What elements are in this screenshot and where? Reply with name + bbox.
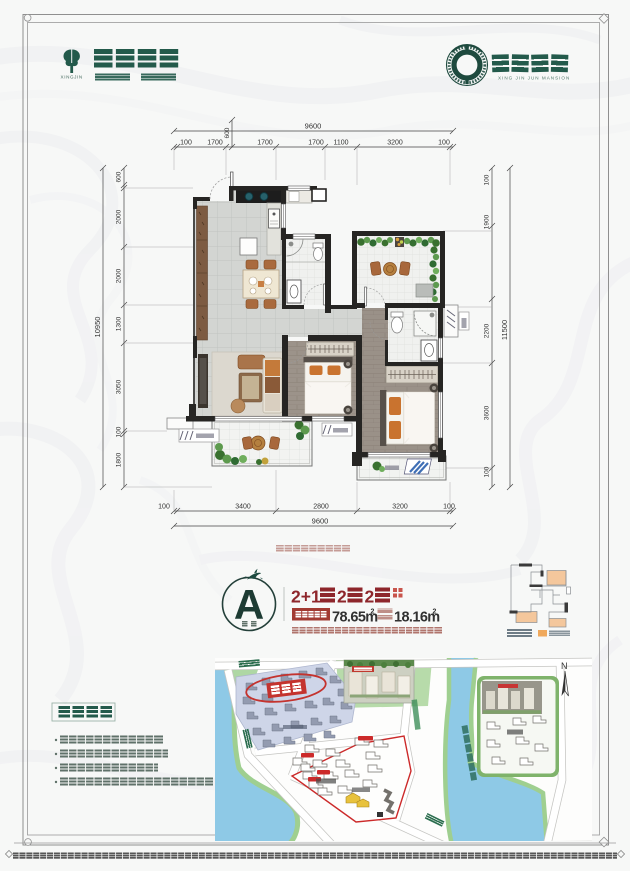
svg-text:100: 100 xyxy=(158,504,170,511)
svg-text:600: 600 xyxy=(116,171,123,182)
svg-text:3400: 3400 xyxy=(235,504,251,511)
svg-text:3200: 3200 xyxy=(392,504,408,511)
svg-text:1100: 1100 xyxy=(333,140,348,147)
svg-text:1700: 1700 xyxy=(257,140,273,147)
svg-text:100: 100 xyxy=(484,174,491,185)
svg-text:1700: 1700 xyxy=(308,140,324,147)
svg-text:XINGJIN: XINGJIN xyxy=(61,75,83,80)
svg-text:10950: 10950 xyxy=(93,317,102,338)
svg-text:3200: 3200 xyxy=(387,140,403,147)
svg-text:XING JIN JUN MANSION: XING JIN JUN MANSION xyxy=(498,76,570,81)
svg-text:2: 2 xyxy=(433,609,437,616)
svg-text:N: N xyxy=(561,661,568,671)
svg-text:2800: 2800 xyxy=(313,504,329,511)
svg-text:100: 100 xyxy=(116,426,123,437)
svg-text:9600: 9600 xyxy=(312,517,329,526)
svg-text:2: 2 xyxy=(365,587,375,607)
svg-text:9600: 9600 xyxy=(305,122,322,131)
svg-text:2: 2 xyxy=(371,609,375,616)
svg-text:1700: 1700 xyxy=(207,140,223,147)
svg-text:1300: 1300 xyxy=(116,316,123,331)
svg-text:1900: 1900 xyxy=(484,214,491,229)
svg-text:3050: 3050 xyxy=(116,379,123,394)
svg-text:600: 600 xyxy=(224,127,231,138)
svg-text:100: 100 xyxy=(484,466,491,477)
svg-text:2000: 2000 xyxy=(116,209,123,224)
svg-text:1800: 1800 xyxy=(116,452,123,467)
svg-text:3600: 3600 xyxy=(484,405,491,420)
svg-text:2+1: 2+1 xyxy=(291,587,321,607)
svg-text:A: A xyxy=(234,581,264,628)
svg-text:2200: 2200 xyxy=(484,323,491,338)
svg-text:100: 100 xyxy=(180,140,192,147)
svg-text:2000: 2000 xyxy=(116,268,123,283)
svg-text:100: 100 xyxy=(443,504,455,511)
svg-text:11500: 11500 xyxy=(500,320,509,340)
svg-text:2: 2 xyxy=(337,587,347,607)
svg-text:100: 100 xyxy=(438,140,450,147)
